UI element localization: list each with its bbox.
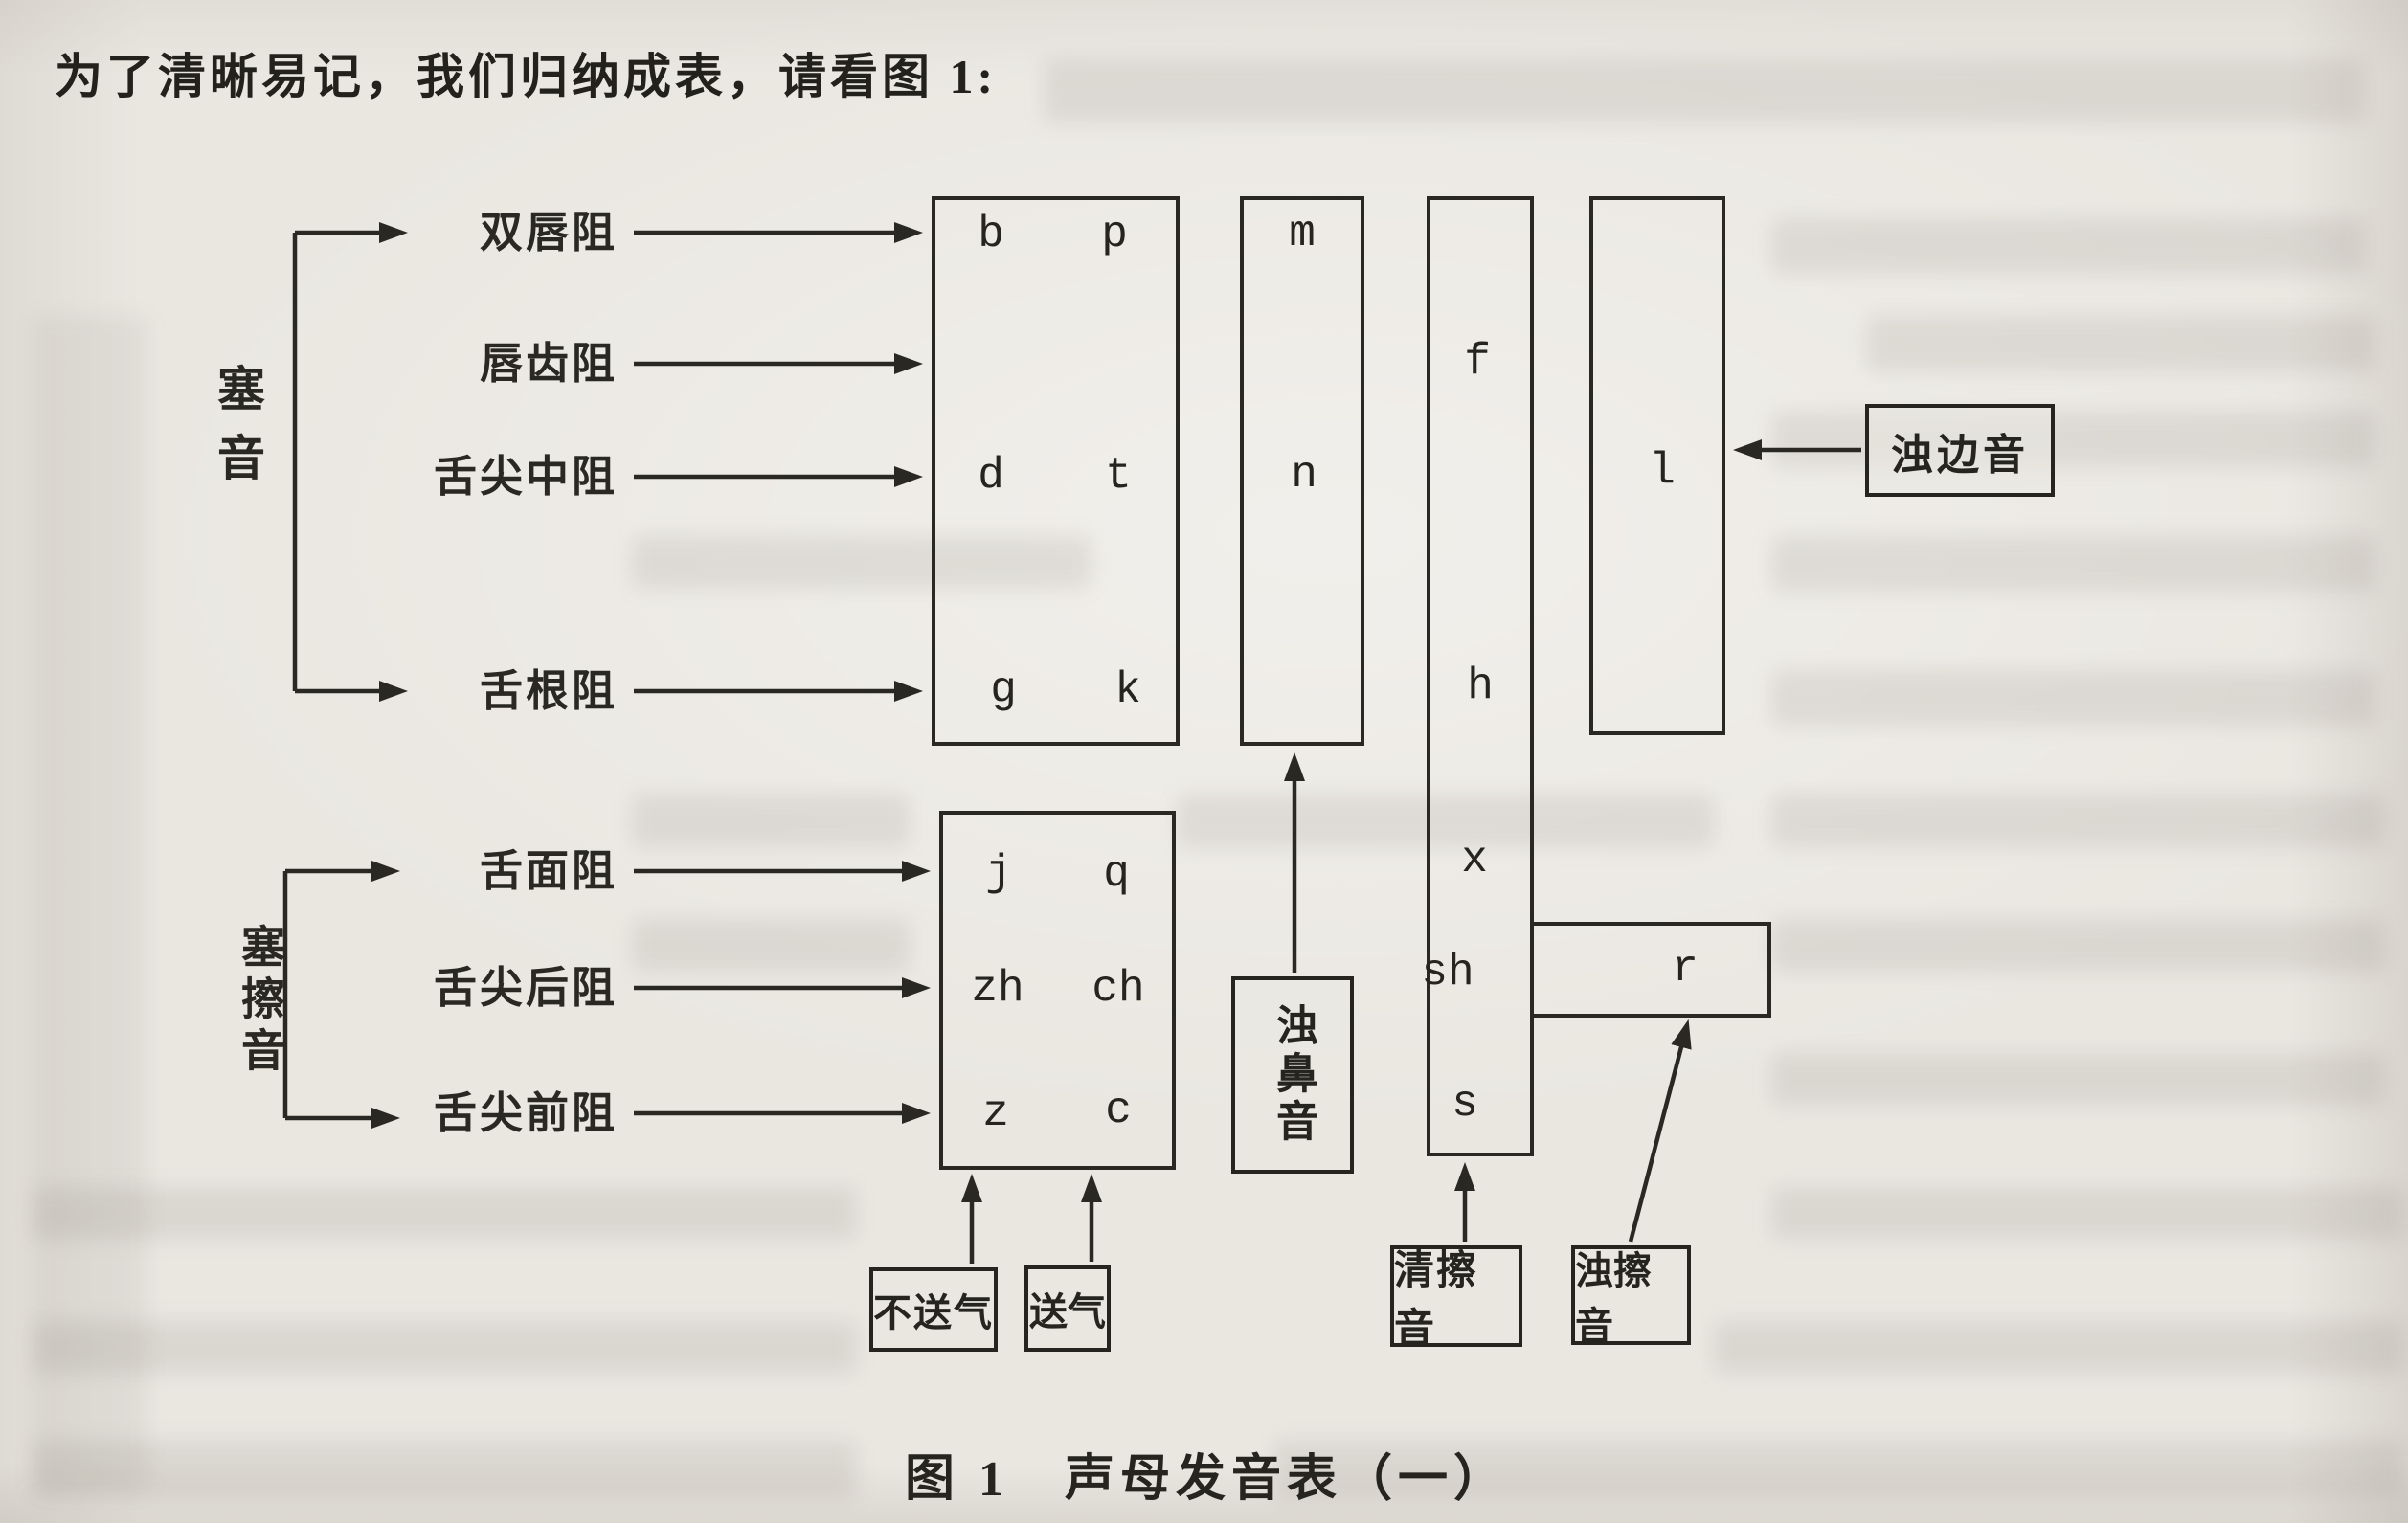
initial-g: g	[990, 665, 1017, 715]
row-label-labiodental: 唇齿阻	[349, 337, 618, 391]
voiceless-fricative-callout: 清擦音	[1390, 1245, 1522, 1347]
initial-f: f	[1464, 337, 1491, 387]
stop-group-label: 塞音	[203, 364, 272, 502]
initial-t: t	[1105, 451, 1132, 501]
voiced-fricative-callout: 浊擦音	[1571, 1245, 1691, 1345]
voiceless-fricative-callout-label: 清擦音	[1394, 1238, 1519, 1355]
initial-m: m	[1289, 209, 1316, 258]
aspirated-callout-label: 送气	[1029, 1281, 1106, 1336]
initial-s: s	[1452, 1079, 1478, 1129]
initial-h: h	[1467, 661, 1494, 711]
aspirated-callout: 送气	[1024, 1265, 1111, 1352]
initial-ch: ch	[1091, 964, 1144, 1014]
voiced-lateral-callout-label: 浊边音	[1891, 420, 2029, 482]
initial-q: q	[1103, 849, 1130, 899]
voiced-fricative-callout-label: 浊擦音	[1575, 1240, 1687, 1351]
unaspirated-callout: 不送气	[869, 1267, 998, 1352]
initial-b: b	[978, 210, 1004, 259]
unaspirated-callout-label: 不送气	[873, 1282, 994, 1337]
row-label-palatal: 舌面阻	[349, 844, 618, 898]
voiced-nasal-callout: 浊鼻音	[1231, 976, 1354, 1174]
initial-d: d	[978, 451, 1004, 501]
row-label-retroflex: 舌尖后阻	[349, 961, 618, 1015]
row-label-velar: 舌根阻	[349, 664, 618, 718]
row-label-alveolar: 舌尖中阻	[349, 450, 618, 504]
scanned-book-page: 为了清晰易记，我们归纳成表，请看图 1:	[0, 0, 2408, 1523]
initial-r: r	[1672, 944, 1699, 994]
voiced-fricative-arrow	[1631, 1043, 1682, 1242]
stop-initials-box	[932, 196, 1180, 746]
initial-k: k	[1114, 665, 1141, 715]
voiced-fricative-region	[1530, 922, 1771, 1018]
initial-j: j	[985, 848, 1012, 898]
figure-caption: 图 1 声母发音表（一）	[905, 1438, 1509, 1510]
initial-p: p	[1101, 210, 1128, 259]
voiced-nasal-callout-label: 浊鼻音	[1262, 1003, 1323, 1147]
voiced-lateral-callout: 浊边音	[1865, 404, 2055, 497]
initial-zh: zh	[971, 964, 1024, 1014]
initial-n: n	[1291, 450, 1317, 500]
initial-c: c	[1105, 1086, 1132, 1135]
initial-l: l	[1649, 446, 1676, 496]
row-label-dental: 舌尖前阻	[349, 1086, 618, 1140]
affricate-group-label: 塞擦音	[228, 924, 291, 1079]
initial-sh: sh	[1421, 948, 1474, 997]
initial-z: z	[982, 1088, 1009, 1138]
initial-x: x	[1461, 835, 1488, 885]
row-label-bilabial: 双唇阻	[349, 206, 618, 259]
